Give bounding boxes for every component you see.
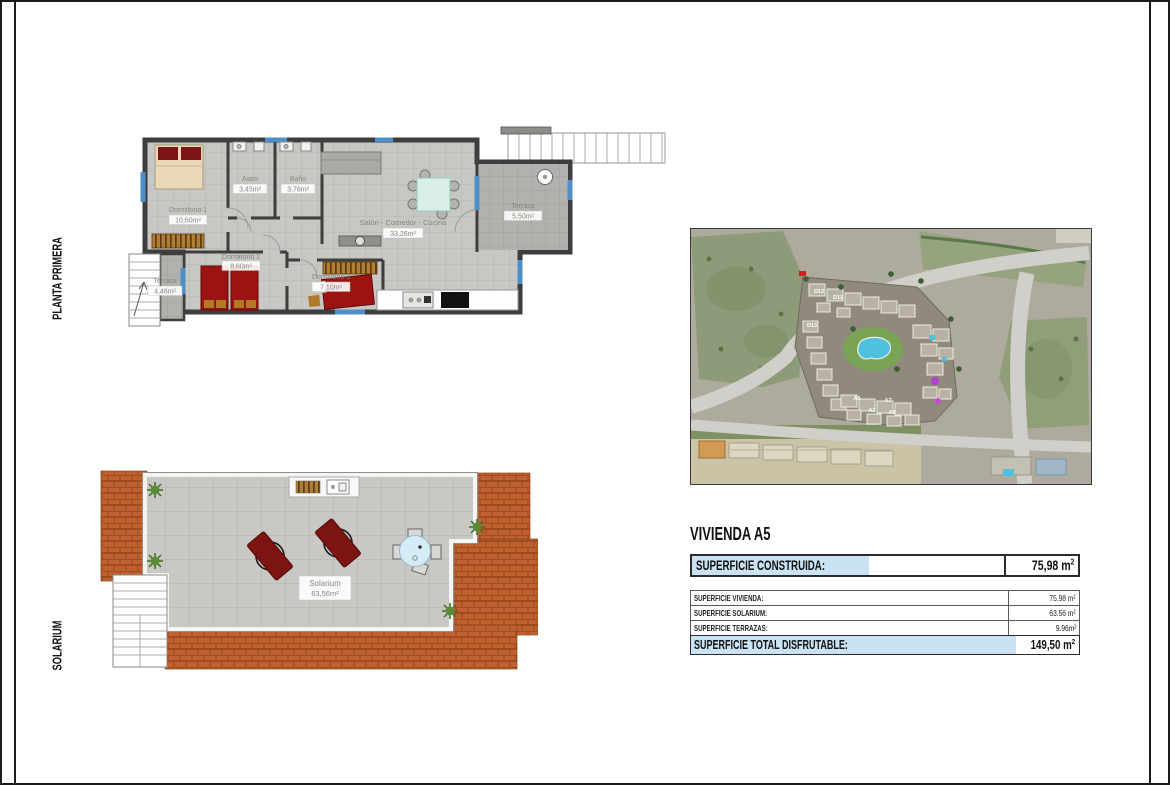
- surface-info-panel: VIVIENDA A5 SUPERFICIE CONSTRUIDA: 75,98…: [690, 524, 1080, 655]
- room-area-bano: 3,76m²: [287, 187, 309, 194]
- room-area-dormitorio-3: 7,10m²: [320, 285, 342, 292]
- label-planta-primera: PLANTA PRIMERA: [50, 221, 65, 336]
- room-label-terraza-bl: Terraza: [153, 278, 176, 285]
- total-surface-row: SUPERFICIE TOTAL DISFRUTABLE: 149,50 m2: [690, 635, 1080, 655]
- map-label-a2: A2: [868, 408, 875, 414]
- total-surface-value: 149,50 m2: [1016, 636, 1079, 654]
- room-area-dormitorio-2: 8,60m²: [230, 264, 252, 271]
- room-area-dormitorio-1: 10,50m²: [175, 218, 201, 225]
- solarium-counter: [289, 477, 359, 497]
- room-area-aseo: 3,45m²: [239, 187, 261, 194]
- dwelling-title: VIVIENDA A5: [690, 524, 1080, 548]
- map-label-d11: D11: [833, 295, 843, 301]
- surface-row-vivienda: SUPERFICIE VIVIENDA: 75.98 m²: [690, 590, 1080, 606]
- bed-dormitorio-1: [155, 145, 203, 189]
- room-label-salon: Salón - Comedor - Cocina: [360, 218, 448, 227]
- drawing-sheet: PLANTA PRIMERA SOLARIUM: [0, 0, 1170, 785]
- site-map-image: D12 D11 D13 A5 A2 A7 A1: [691, 229, 1091, 484]
- label-solarium: SOLARIUM: [50, 588, 65, 703]
- room-label-dormitorio-2: Dormitorio 2: [222, 254, 260, 261]
- room-label-dormitorio-3: Dormitorio 3: [312, 274, 350, 281]
- built-surface-label: SUPERFICIE CONSTRUIDA:: [692, 556, 869, 575]
- built-surface-value: 75,98 m2: [1004, 556, 1078, 575]
- site-map: D12 D11 D13 A5 A2 A7 A1: [690, 228, 1092, 485]
- room-label-aseo: Aseo: [242, 176, 258, 183]
- floorplan-planta-primera: Dormitorio 1 10,50m² Aseo 3,45m² Baño 3,…: [125, 120, 670, 335]
- solarium-area: 63,56m²: [311, 589, 339, 598]
- map-label-a5: A5: [853, 396, 860, 402]
- sheet-inner-rule-right: [1149, 0, 1151, 785]
- surface-row-terrazas: SUPERFICIE TERRAZAS: 9.96m²: [690, 620, 1080, 636]
- room-label-terraza-tr: Terraza: [511, 203, 534, 210]
- built-surface-spacer: [869, 556, 1004, 575]
- room-area-terraza-bl: 4,46m²: [154, 289, 176, 296]
- surface-row-solarium: SUPERFICIE SOLARIUM: 63.56 m²: [690, 605, 1080, 621]
- sideboard: [339, 236, 381, 246]
- wardrobe-dormitorio-1: [152, 234, 204, 248]
- room-area-terraza-tr: 5,50m²: [512, 214, 534, 221]
- washing-machine: [538, 170, 553, 185]
- total-surface-label: SUPERFICIE TOTAL DISFRUTABLE:: [691, 636, 1016, 654]
- kitchen-counter: [377, 290, 518, 310]
- sheet-inner-rule-left: [14, 0, 16, 785]
- built-surface-row: SUPERFICIE CONSTRUIDA: 75,98 m2: [690, 554, 1080, 577]
- room-label-dormitorio-1: Dormitorio 1: [169, 207, 207, 214]
- room-label-bano: Baño: [290, 176, 306, 183]
- sofa: [321, 152, 381, 174]
- solarium-plan: Solarium 63,56m²: [93, 463, 538, 688]
- map-label-a7: A7: [884, 398, 891, 404]
- wardrobe-dormitorio-3: [323, 262, 377, 274]
- map-label-d12: D12: [814, 289, 824, 295]
- room-area-salon: 33,26m²: [390, 231, 416, 238]
- map-label-d13: D13: [807, 323, 817, 329]
- map-label-a1: A1: [888, 410, 895, 416]
- external-staircase-solarium: [113, 575, 167, 667]
- solarium-label: Solarium: [309, 579, 341, 588]
